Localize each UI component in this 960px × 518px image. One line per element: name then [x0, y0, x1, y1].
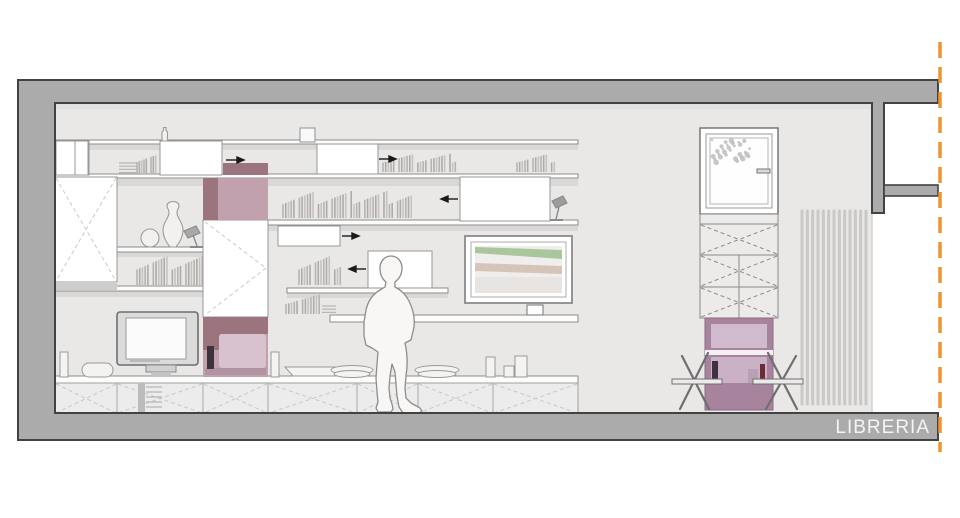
window-unit	[700, 128, 778, 410]
mauve-strip	[203, 178, 218, 220]
beam-section	[884, 185, 938, 196]
open-shelf-cabinet	[705, 318, 773, 410]
tall-box	[515, 356, 527, 377]
small-box	[504, 366, 514, 377]
radiator	[802, 211, 866, 404]
sliding-panel-b	[317, 144, 378, 174]
door-panel-left-base	[55, 282, 117, 290]
chair-bar-left	[672, 379, 722, 384]
speaker-left	[60, 352, 68, 377]
mauve-box-top	[223, 163, 268, 175]
base-cabinets	[55, 383, 578, 414]
counter-top	[55, 376, 578, 383]
cabinet-support	[138, 383, 145, 414]
sliding-panel-a	[160, 141, 222, 175]
wall-art	[465, 236, 572, 315]
shelf-top	[55, 140, 578, 144]
speaker-right	[271, 352, 279, 377]
mini-sofa	[219, 334, 266, 368]
sliding-panel-d	[278, 226, 340, 246]
cabinet-top-panel	[700, 214, 778, 224]
media-box	[527, 305, 543, 315]
panel-divider	[56, 141, 89, 175]
section-drawing-canvas: LIBRERIA	[0, 0, 960, 518]
small-white-box	[300, 128, 315, 142]
mauve-panel	[218, 178, 268, 220]
sliding-panel-c	[460, 177, 550, 221]
cylinder-vase	[486, 357, 495, 377]
door-panel-center	[203, 220, 268, 317]
dark-bottle	[207, 346, 214, 369]
drawing-label: LIBRERIA	[835, 417, 930, 438]
chair-bar-right	[753, 379, 803, 384]
window-handle	[757, 169, 770, 173]
architectural-drawing: LIBRERIA	[0, 0, 960, 518]
mauve-base	[205, 368, 266, 375]
bowl	[82, 363, 113, 377]
sphere-ornament	[141, 229, 159, 247]
shelf-4	[287, 288, 448, 293]
